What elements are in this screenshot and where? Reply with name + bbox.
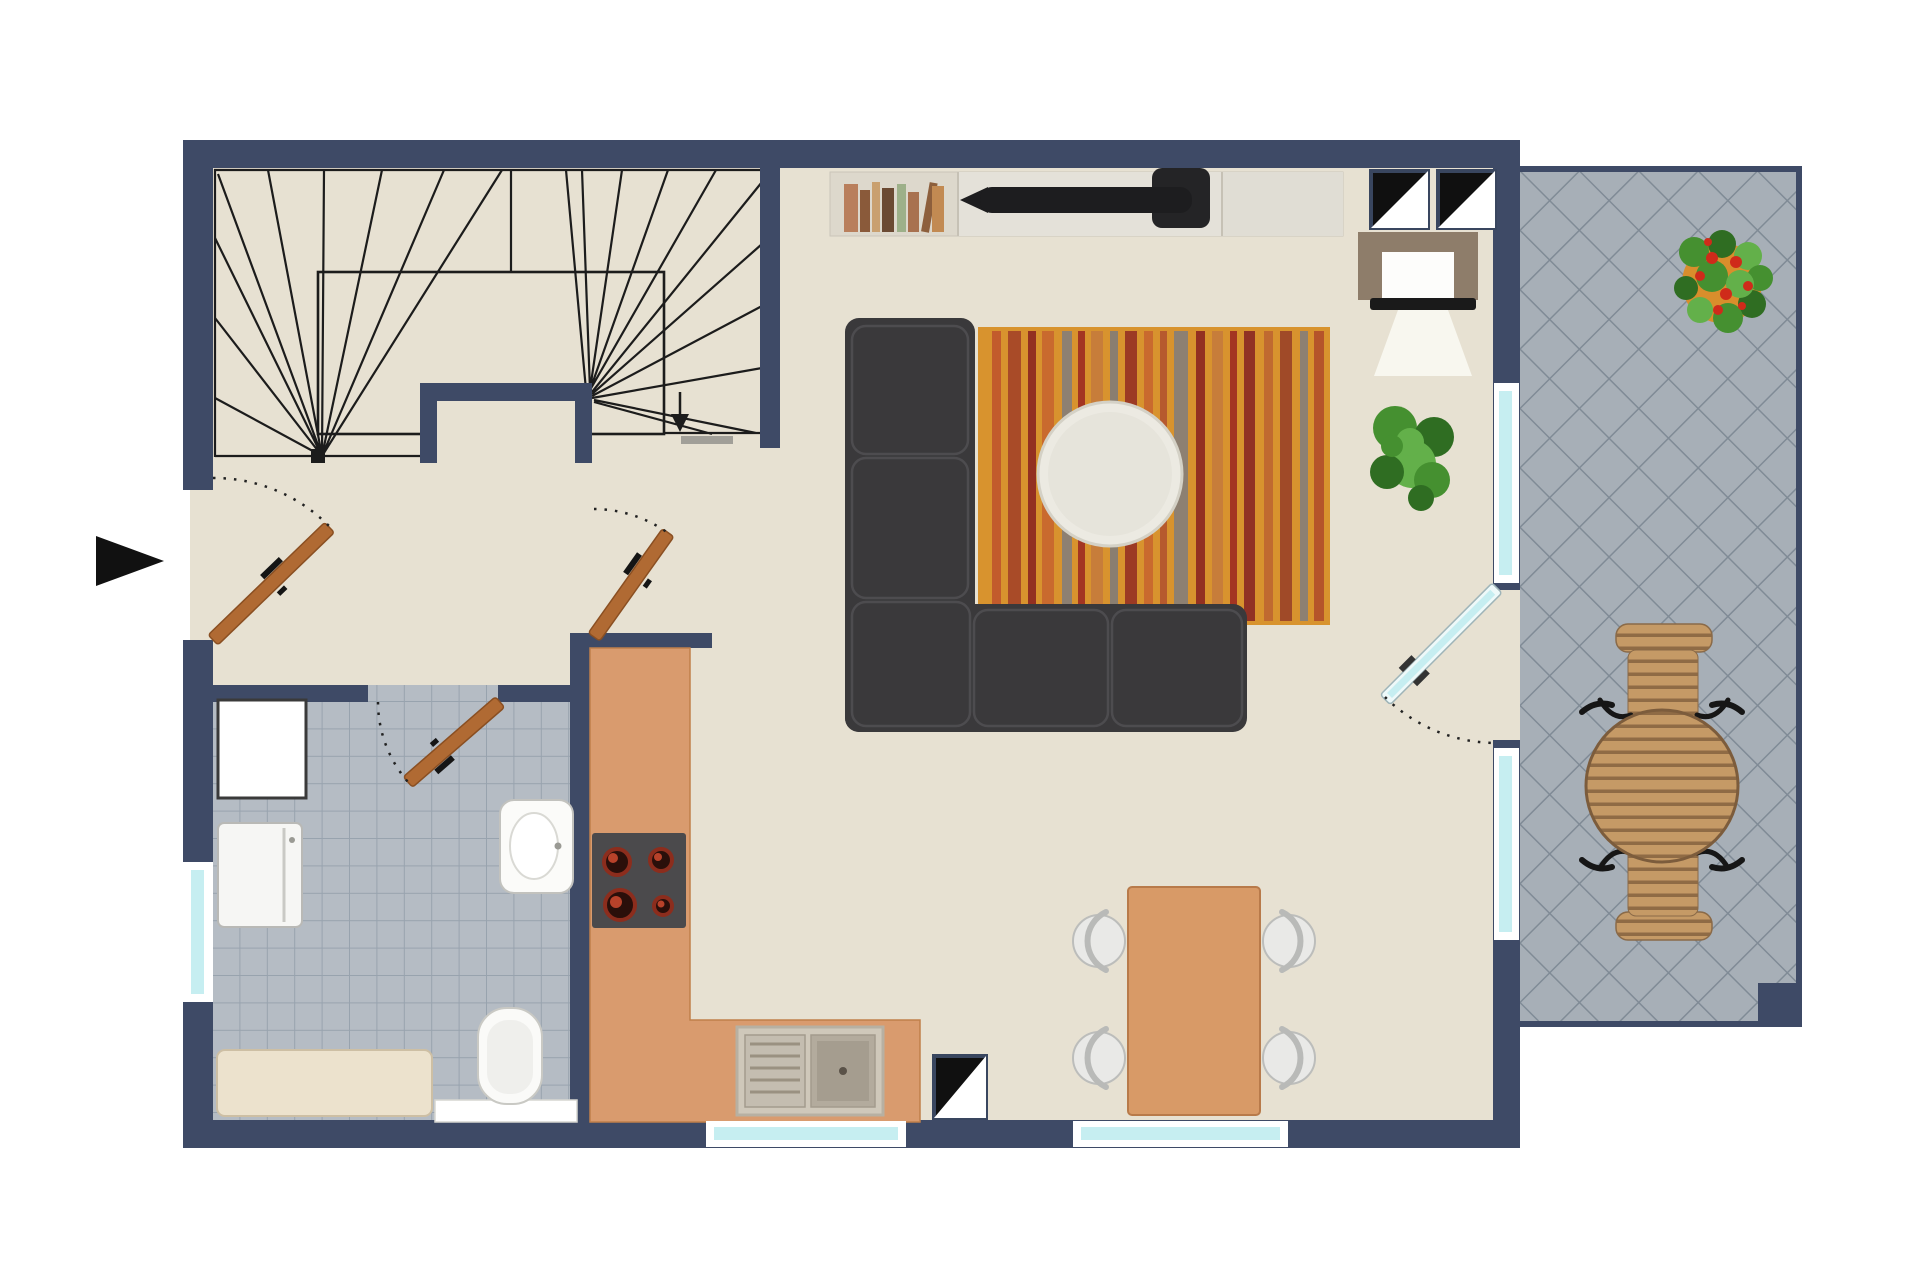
window-right-lower[interactable]	[1494, 748, 1519, 940]
entry-opening-floor	[190, 488, 213, 642]
shaft-symbol-icon	[1438, 171, 1495, 228]
shaft-symbol-icon	[934, 1056, 986, 1118]
book-spine	[908, 192, 919, 232]
coffee-table-icon[interactable]	[1038, 402, 1182, 546]
book-spine	[897, 184, 906, 232]
kitchen-sink-icon[interactable]	[737, 1027, 883, 1115]
entrance-arrow-icon	[96, 536, 164, 586]
wall-stairwell-left	[420, 383, 437, 463]
window-cap	[183, 1002, 213, 1014]
stair-newel-post	[311, 449, 325, 463]
book-spine	[872, 182, 880, 232]
window-right-upper[interactable]	[1494, 383, 1519, 583]
sofa-bottom-arm[interactable]	[845, 604, 1247, 732]
sideboard[interactable]	[830, 168, 1343, 236]
dining-table[interactable]	[1128, 887, 1260, 1115]
rug-stripe	[1230, 331, 1237, 621]
stairwell-void-floor	[437, 401, 575, 463]
rug-stripe	[1212, 331, 1223, 621]
balcony-corner-pillar	[1758, 983, 1802, 1027]
armchair-cushion	[1382, 252, 1454, 304]
shaft-symbol-icon	[1371, 171, 1428, 228]
window-bathroom-left[interactable]	[186, 862, 212, 1002]
sideboard-right	[1222, 172, 1343, 236]
balcony-door-opening-floor	[1493, 590, 1520, 740]
rug-stripe	[1244, 331, 1255, 621]
rug-stripe	[1196, 331, 1205, 621]
window-cap	[183, 850, 213, 862]
rug-stripe	[992, 331, 1001, 621]
rug-stripe	[1280, 331, 1292, 621]
tv-icon[interactable]	[980, 187, 1192, 213]
wall-top	[183, 140, 1520, 168]
shower-icon[interactable]	[218, 700, 306, 798]
window-dining-bottom[interactable]	[1073, 1121, 1288, 1147]
rug-stripe	[1008, 331, 1021, 621]
cooktop-icon[interactable]	[592, 833, 686, 928]
rug-stripe	[1028, 331, 1036, 621]
washing-machine-icon[interactable]	[218, 823, 302, 927]
rug-stripe	[1314, 331, 1324, 621]
wall-left-upper	[183, 140, 213, 490]
balcony-parapet-top	[1520, 166, 1802, 172]
book-spine	[932, 186, 944, 232]
rug-stripe	[1300, 331, 1308, 621]
washbasin-icon[interactable]	[500, 800, 573, 893]
rug-stripe	[1264, 331, 1273, 621]
reading-light-bar	[1370, 298, 1476, 310]
stair-first-step	[681, 436, 733, 444]
wall-stair-right	[760, 140, 780, 448]
book-spine	[860, 190, 870, 232]
book-spine	[844, 184, 858, 232]
floor-plan-canvas	[0, 0, 1920, 1278]
balcony-parapet-right	[1796, 166, 1802, 1027]
coffee-table-top	[1048, 412, 1172, 536]
wall-stairwell-top	[420, 383, 592, 401]
book-spine	[882, 188, 894, 232]
wall-stairwell-right	[575, 383, 592, 463]
wall-left-middle	[183, 640, 213, 858]
window-kitchen-bottom[interactable]	[706, 1121, 906, 1147]
bathtub-icon[interactable]	[217, 1050, 432, 1116]
